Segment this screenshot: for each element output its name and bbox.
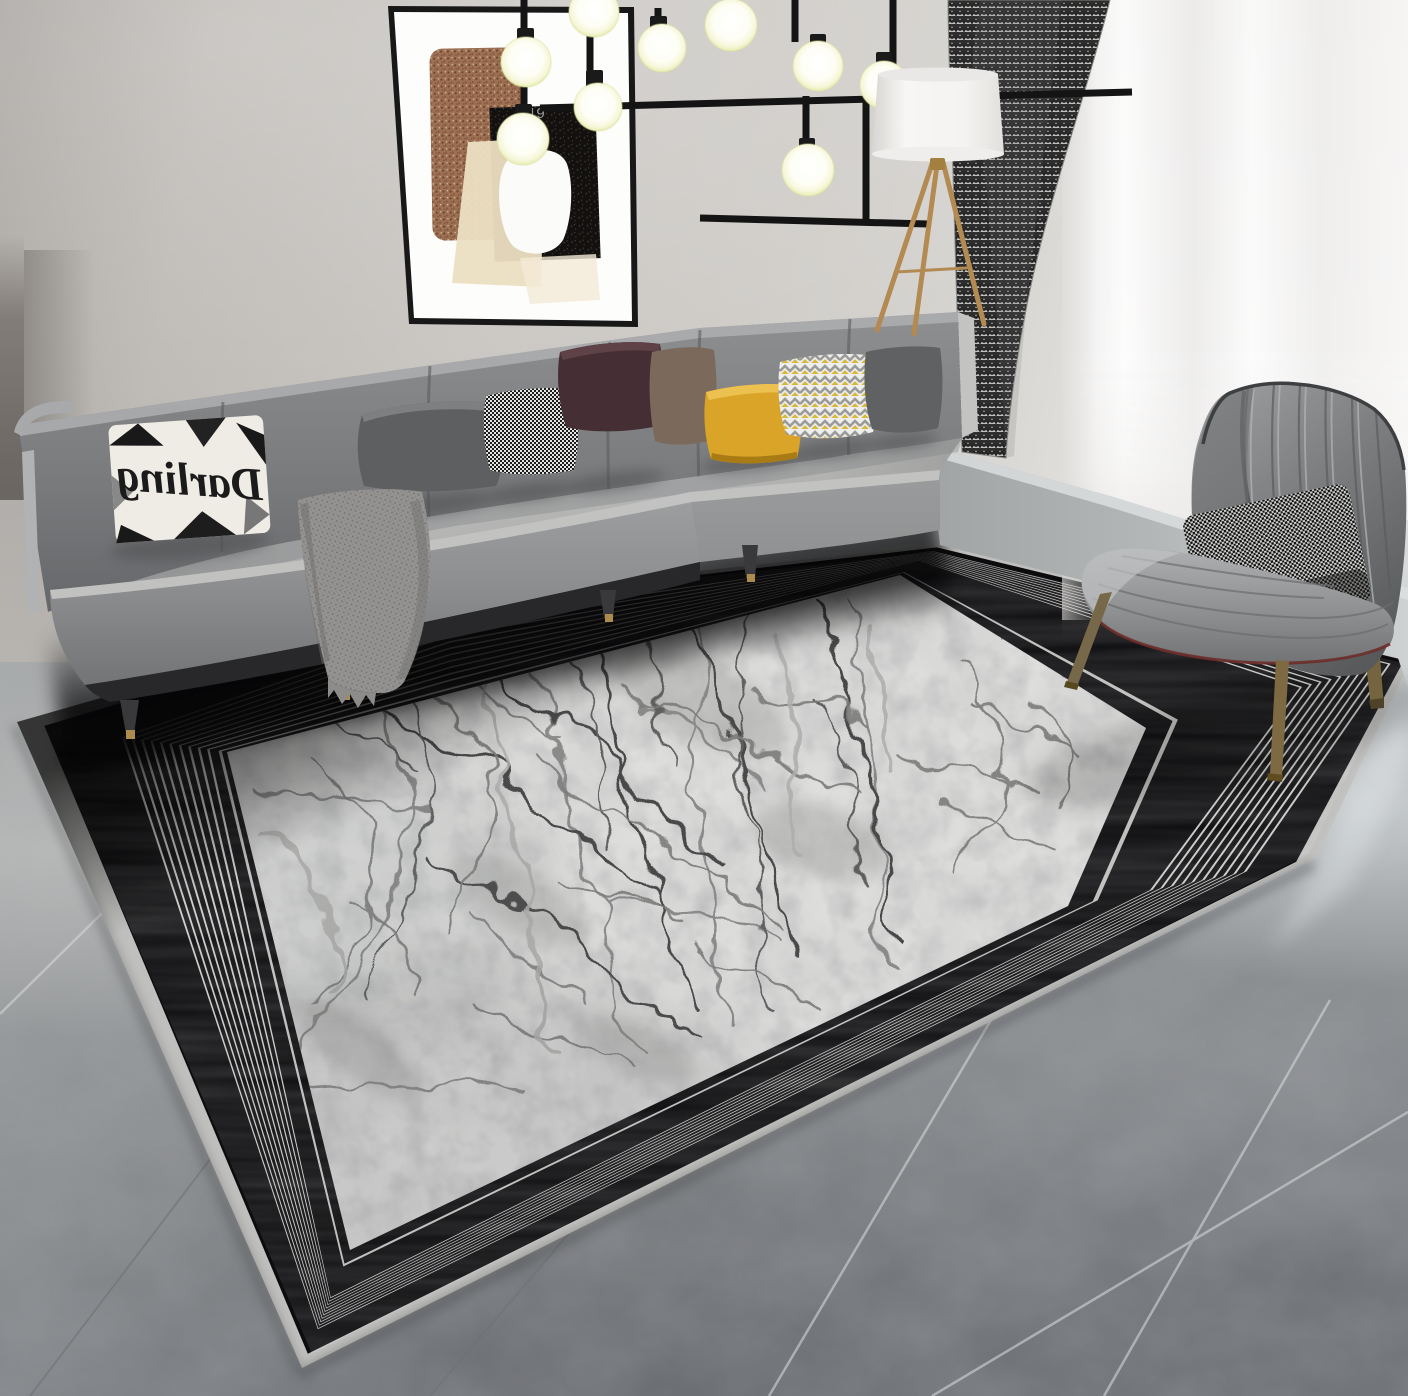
svg-text:Darling: Darling xyxy=(114,449,266,510)
